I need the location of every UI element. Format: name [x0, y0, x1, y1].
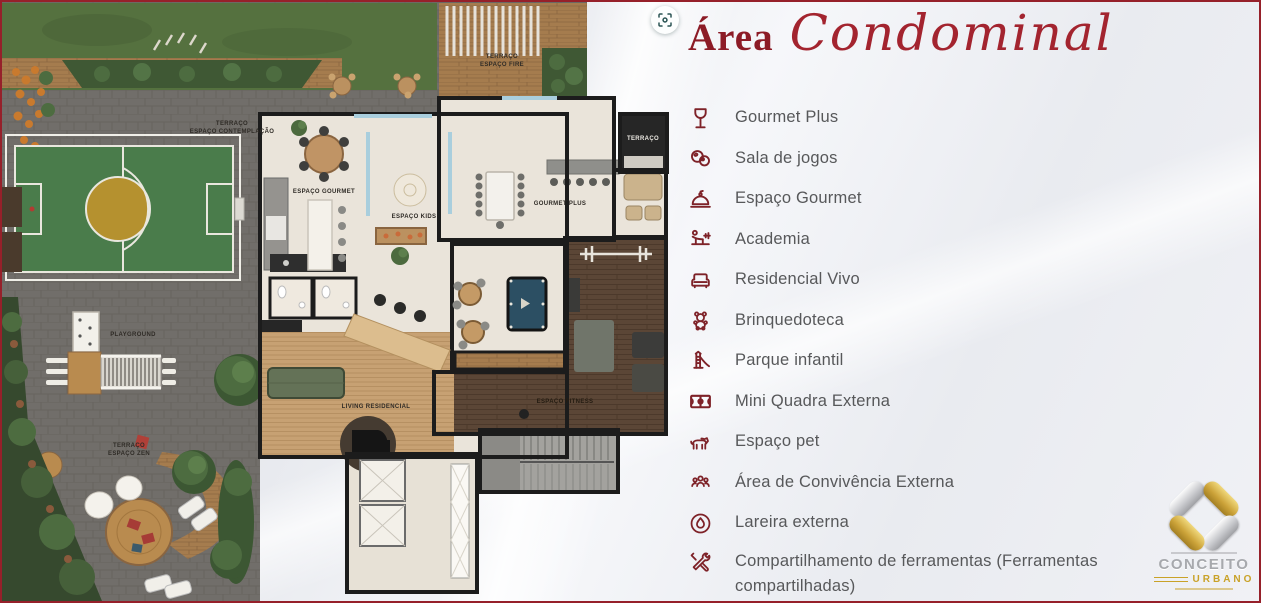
- gym-bench-icon: [686, 226, 714, 253]
- wine-glass-icon: [686, 105, 714, 132]
- screenshot-button[interactable]: [651, 6, 679, 34]
- slide-icon: [686, 348, 714, 375]
- fire-icon: [686, 510, 714, 537]
- amenity-label: Mini Quadra Externa: [735, 389, 890, 415]
- amenity-label: Brinquedoteca: [735, 308, 844, 334]
- amenity-label: Sala de jogos: [735, 146, 838, 172]
- sofa-icon: [686, 267, 714, 294]
- mini-court: [4, 135, 244, 280]
- logo-gold-line: [1154, 577, 1188, 582]
- cloche-icon: [686, 186, 714, 213]
- amenity-label: Academia: [735, 227, 810, 253]
- logo-text: CONCEITO URBANO: [1148, 552, 1260, 590]
- logo-brand-subtitle: URBANO: [1193, 574, 1255, 585]
- list-item: Brinquedoteca: [686, 301, 1116, 342]
- teddy-bear-icon: [686, 307, 714, 334]
- amenity-label: Residencial Vivo: [735, 267, 860, 293]
- list-item: Mini Quadra Externa: [686, 382, 1116, 423]
- logo-mark-icon: [1164, 476, 1244, 556]
- logo-tagline-bar: [1175, 588, 1233, 590]
- list-item: Lareira externa: [686, 503, 1116, 544]
- screenshot-icon: [656, 11, 674, 29]
- list-item: Compartilhamento de ferramentas (Ferrame…: [686, 544, 1116, 603]
- planter-bench: [2, 187, 22, 227]
- list-item: Academia: [686, 220, 1116, 261]
- amenities-list: Gourmet Plus Sala de jogos Espaço Gourme…: [686, 98, 1116, 603]
- floor-plan-rendering: [2, 2, 670, 601]
- developer-logo: CONCEITO URBANO: [1148, 476, 1260, 598]
- list-item: Parque infantil: [686, 341, 1116, 382]
- people-group-icon: [686, 469, 714, 496]
- amenity-label: Espaço pet: [735, 429, 820, 455]
- list-item: Gourmet Plus: [686, 98, 1116, 139]
- amenity-label: Parque infantil: [735, 348, 844, 374]
- planter-bench: [2, 232, 22, 272]
- amenity-label: Área de Convivência Externa: [735, 470, 954, 496]
- list-item: Sala de jogos: [686, 139, 1116, 180]
- logo-tagline-bar: [1171, 552, 1237, 554]
- amenity-label: Espaço Gourmet: [735, 186, 862, 212]
- logo-brand-name: CONCEITO: [1148, 556, 1260, 573]
- title-script-word: Condominal: [790, 4, 1114, 62]
- list-item: Residencial Vivo: [686, 260, 1116, 301]
- list-item: Espaço pet: [686, 422, 1116, 463]
- amenity-label: Compartilhamento de ferramentas (Ferrame…: [735, 549, 1107, 600]
- tools-icon: [686, 549, 714, 576]
- page-title: Área Condominal: [688, 4, 1114, 62]
- dog-icon: [686, 429, 714, 456]
- amenity-label: Lareira externa: [735, 510, 849, 536]
- billiard-balls-icon: [686, 145, 714, 172]
- list-item: Espaço Gourmet: [686, 179, 1116, 220]
- area-condominal-page: TERRAÇO ESPAÇO CONTEMPLAÇÃO TERRAÇO ESPA…: [0, 0, 1261, 603]
- sports-court-icon: [686, 388, 714, 415]
- amenity-label: Gourmet Plus: [735, 105, 838, 131]
- list-item: Área de Convivência Externa: [686, 463, 1116, 504]
- title-word: Área: [688, 15, 774, 60]
